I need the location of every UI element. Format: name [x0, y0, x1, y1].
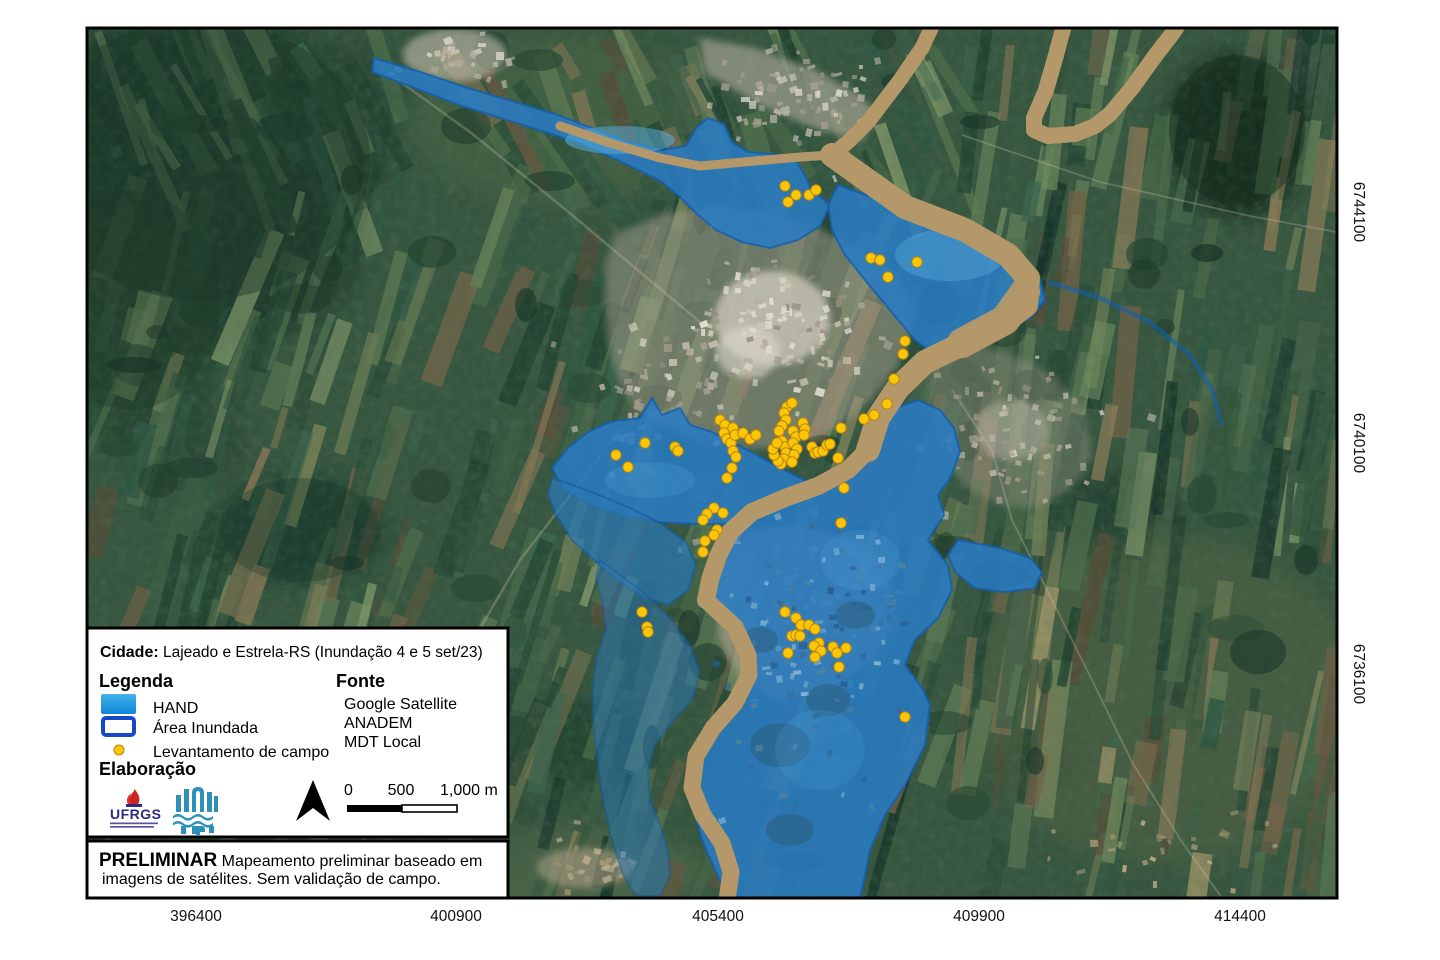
svg-text:ANADEM: ANADEM — [344, 715, 412, 732]
svg-text:414400: 414400 — [1214, 908, 1266, 925]
svg-text:Cidade: Lajeado e Estrela-RS (: Cidade: Lajeado e Estrela-RS (Inundação … — [100, 644, 483, 661]
svg-text:imagens de satélites. Sem vali: imagens de satélites. Sem validação de c… — [102, 871, 441, 888]
svg-text:396400: 396400 — [170, 908, 222, 925]
svg-text:HAND: HAND — [153, 700, 198, 717]
svg-text:6736100: 6736100 — [1350, 644, 1367, 705]
svg-text:6740100: 6740100 — [1350, 413, 1367, 474]
svg-text:6744100: 6744100 — [1350, 182, 1367, 243]
svg-text:Legenda: Legenda — [99, 671, 174, 691]
svg-text:Elaboração: Elaboração — [99, 759, 196, 779]
svg-text:405400: 405400 — [692, 908, 744, 925]
svg-text:PRELIMINAR Mapeamento prelimi: PRELIMINAR Mapeamento preliminar baseado… — [99, 850, 482, 871]
svg-text:UFRGS: UFRGS — [110, 806, 162, 822]
svg-text:0: 0 — [344, 782, 353, 799]
svg-text:Fonte: Fonte — [336, 671, 385, 691]
svg-text:500: 500 — [388, 782, 415, 799]
svg-text:Área Inundada: Área Inundada — [153, 718, 258, 737]
svg-text:409900: 409900 — [953, 908, 1005, 925]
svg-text:400900: 400900 — [430, 908, 482, 925]
svg-text:1,000 m: 1,000 m — [440, 782, 498, 799]
svg-text:MDT Local: MDT Local — [344, 734, 421, 751]
svg-text:Google Satellite: Google Satellite — [344, 696, 457, 713]
